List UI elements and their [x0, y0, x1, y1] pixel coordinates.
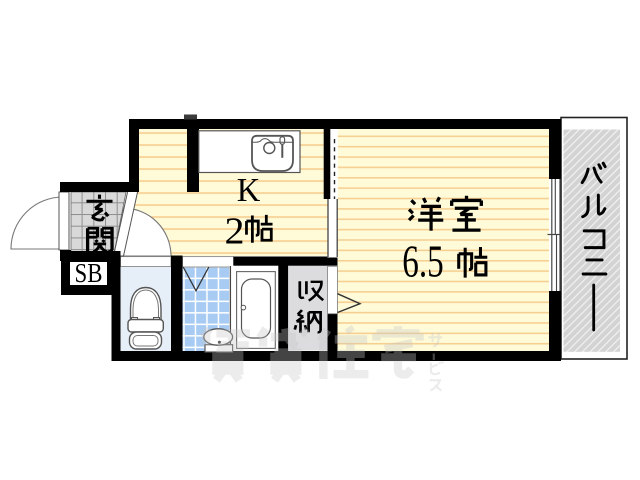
- svg-text:K: K: [237, 172, 261, 209]
- svg-text:2: 2: [225, 210, 245, 252]
- svg-text:SB: SB: [75, 258, 103, 288]
- svg-text:6.5: 6.5: [402, 235, 444, 286]
